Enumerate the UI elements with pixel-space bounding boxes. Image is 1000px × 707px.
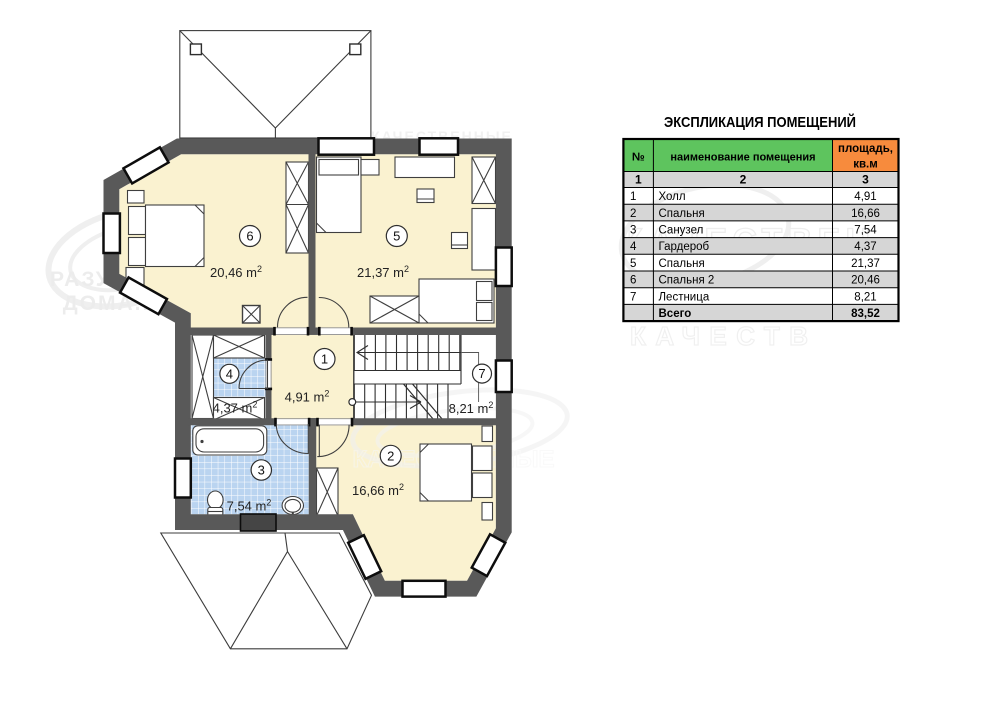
svg-text:3: 3	[630, 225, 636, 237]
svg-text:4,91 m2: 4,91 m2	[285, 389, 330, 405]
svg-text:4,37 m2: 4,37 m2	[213, 400, 258, 416]
svg-text:1: 1	[635, 173, 642, 187]
svg-text:16,66: 16,66	[851, 208, 880, 220]
svg-text:5: 5	[630, 258, 636, 270]
svg-text:№: №	[632, 152, 645, 164]
svg-text:8,21: 8,21	[854, 291, 876, 303]
svg-text:4,37: 4,37	[854, 241, 876, 253]
svg-text:Гардероб: Гардероб	[659, 241, 710, 253]
svg-text:Спальня: Спальня	[659, 208, 705, 220]
svg-text:6: 6	[246, 229, 253, 244]
svg-text:4: 4	[630, 241, 637, 253]
svg-text:1: 1	[321, 352, 328, 367]
svg-text:7: 7	[478, 366, 485, 381]
svg-text:Всего: Всего	[659, 308, 692, 320]
svg-text:3: 3	[258, 463, 265, 478]
svg-text:Холл: Холл	[659, 191, 686, 203]
svg-text:7: 7	[630, 291, 636, 303]
svg-text:наименование помещения: наименование помещения	[670, 152, 815, 164]
svg-text:7,54: 7,54	[854, 225, 877, 237]
svg-text:2: 2	[630, 208, 636, 220]
svg-text:Спальня: Спальня	[659, 258, 705, 270]
svg-text:Спальня 2: Спальня 2	[659, 275, 715, 287]
svg-text:4: 4	[226, 366, 233, 381]
svg-text:2: 2	[387, 448, 394, 463]
svg-text:1: 1	[630, 191, 636, 203]
svg-text:4,91: 4,91	[854, 191, 876, 203]
svg-text:Санузел: Санузел	[659, 225, 704, 237]
svg-text:20,46: 20,46	[851, 275, 880, 287]
svg-text:ЭКСПЛИКАЦИЯ ПОМЕЩЕНИЙ: ЭКСПЛИКАЦИЯ ПОМЕЩЕНИЙ	[664, 113, 856, 131]
svg-text:16,66 m2: 16,66 m2	[352, 482, 404, 498]
svg-text:21,37 m2: 21,37 m2	[357, 264, 409, 280]
svg-text:Лестница: Лестница	[659, 291, 710, 303]
svg-text:21,37: 21,37	[851, 258, 880, 270]
svg-text:20,46 m2: 20,46 m2	[210, 264, 262, 280]
svg-text:8,21 m2: 8,21 m2	[449, 400, 494, 416]
svg-text:83,52: 83,52	[851, 308, 880, 320]
svg-text:площадь,: площадь,	[838, 143, 893, 155]
svg-text:кв.м: кв.м	[853, 159, 878, 171]
svg-text:5: 5	[393, 229, 400, 244]
svg-text:7,54 m2: 7,54 m2	[227, 498, 272, 514]
svg-text:2: 2	[740, 173, 747, 187]
svg-text:6: 6	[630, 275, 636, 287]
svg-text:3: 3	[862, 173, 869, 187]
